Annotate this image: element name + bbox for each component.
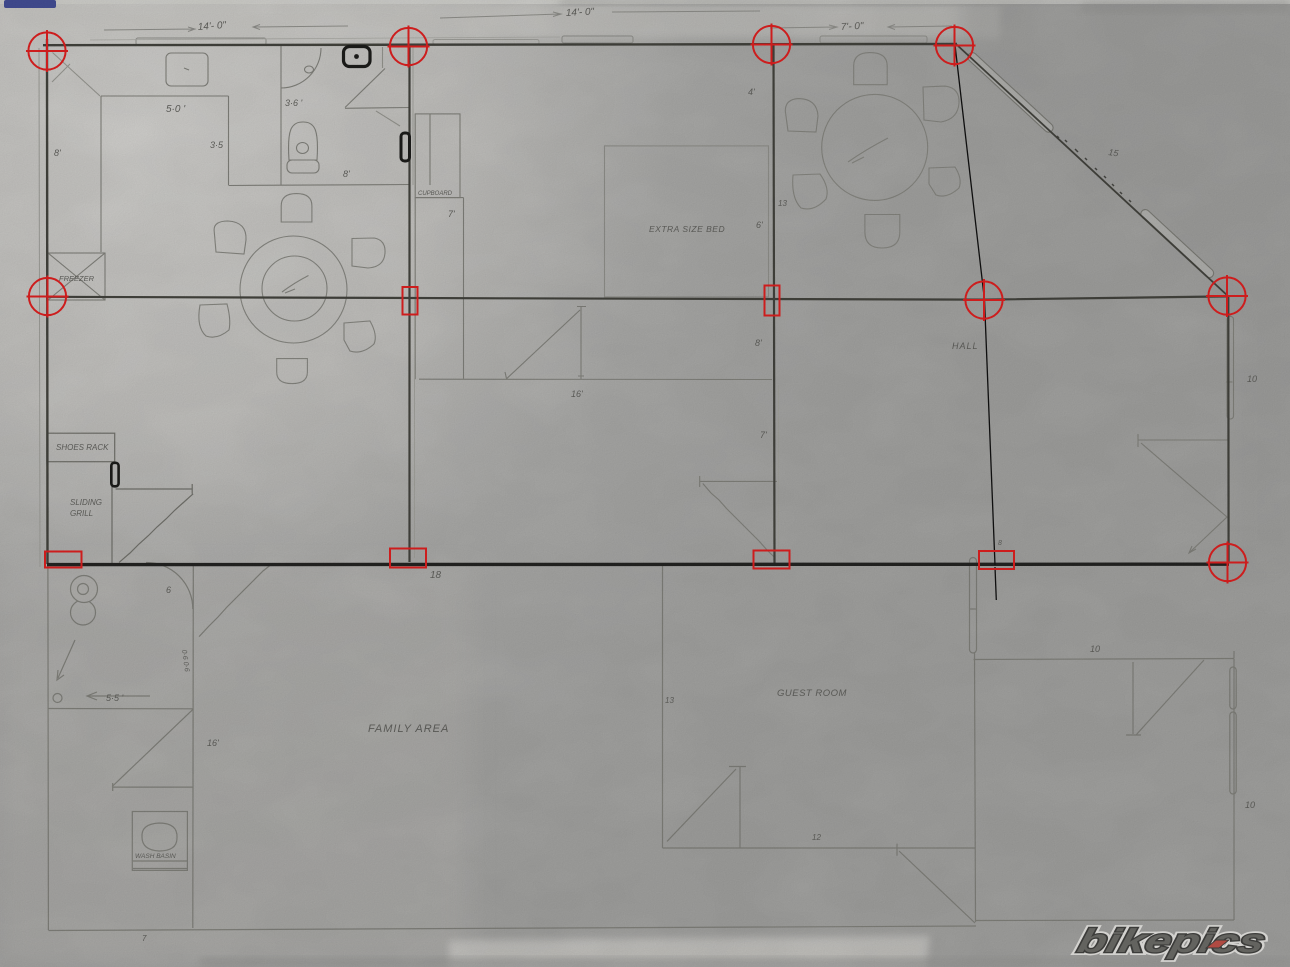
svg-text:bikepics: bikepics [1074, 923, 1269, 959]
